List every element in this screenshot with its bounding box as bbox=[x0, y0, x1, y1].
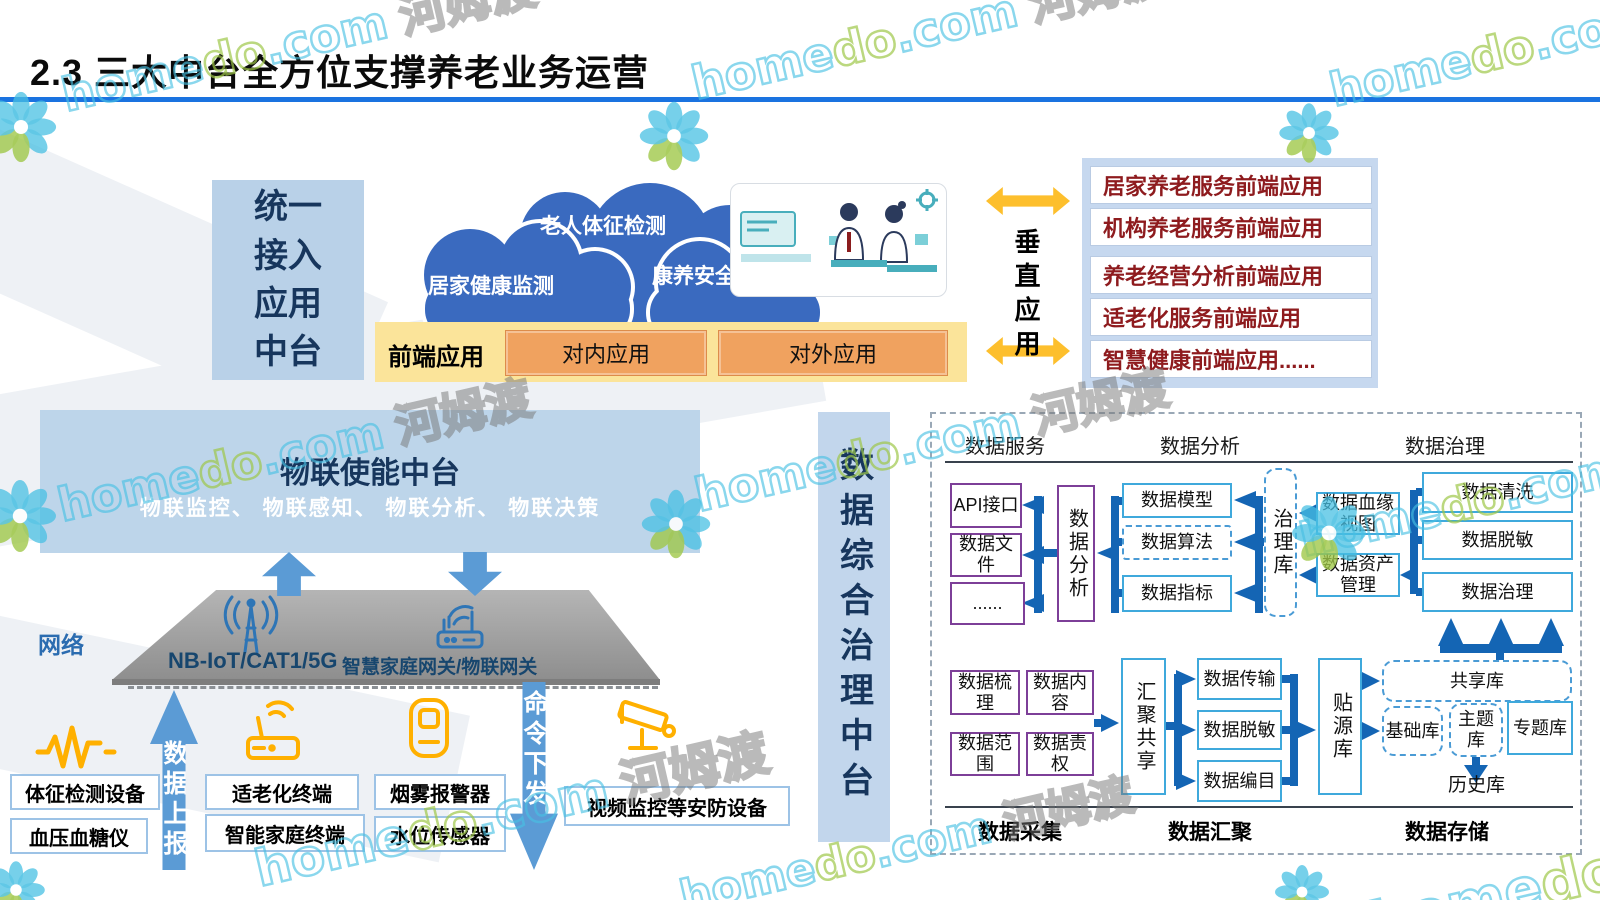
data-governance-platform-bar: 数据综合治理中台 bbox=[818, 412, 890, 842]
box-ellipsis: ...... bbox=[950, 582, 1025, 625]
cloud-label-vital-detection: 老人体征检测 bbox=[540, 210, 666, 240]
box-data-model: 数据模型 bbox=[1122, 483, 1232, 518]
cloud-label-home-health: 居家健康监测 bbox=[428, 270, 554, 300]
box-share-library: 共享库 bbox=[1382, 660, 1572, 702]
device-label-elder-terminal: 适老化终端 bbox=[205, 774, 359, 810]
command-download-label: 命令下发 bbox=[516, 690, 552, 810]
internal-app-box: 对内应用 bbox=[505, 330, 707, 376]
box-data-cleaning: 数据清洗 bbox=[1422, 472, 1573, 513]
slide-title: 2.3 三大中台全方位支撑养老业务运营 bbox=[30, 44, 649, 96]
section-header-data-governance: 数据治理 bbox=[1405, 430, 1485, 459]
box-data-content: 数据内容 bbox=[1026, 670, 1094, 715]
double-headed-arrow bbox=[986, 187, 1070, 215]
box-data-duty: 数据责权 bbox=[1026, 732, 1094, 776]
vertical-app-item: 机构养老服务前端应用 bbox=[1090, 208, 1372, 246]
homedo-flower-icon bbox=[636, 98, 712, 174]
slide-canvas: 2.3 三大中台全方位支撑养老业务运营 统一 接入 应用 中台 老人体征检测 居… bbox=[0, 0, 1600, 900]
radio-tech-label: NB-IoT/CAT1/5G bbox=[168, 648, 337, 674]
vertical-apps-label: 垂直应用 bbox=[1008, 228, 1045, 364]
cctv-camera-icon bbox=[612, 698, 688, 760]
device-label-video: 视频监控等安防设备 bbox=[564, 786, 790, 826]
box-data-file: 数据文件 bbox=[950, 533, 1022, 577]
down-arrow bbox=[448, 552, 502, 596]
box-data-combing: 数据梳理 bbox=[950, 670, 1020, 715]
vertical-app-item: 养老经营分析前端应用 bbox=[1090, 256, 1372, 294]
unified-access-platform-panel: 统一 接入 应用 中台 bbox=[212, 180, 364, 380]
box-base-library: 基础库 bbox=[1382, 706, 1443, 756]
device-label-vital: 体征检测设备 bbox=[10, 774, 160, 810]
vertical-app-item: 居家养老服务前端应用 bbox=[1090, 166, 1372, 204]
section-header-data-analysis: 数据分析 bbox=[1160, 430, 1240, 459]
device-label-smoke: 烟雾报警器 bbox=[374, 774, 506, 810]
device-label-home-terminal: 智能家庭终端 bbox=[205, 814, 365, 852]
dashed-separator bbox=[128, 686, 658, 689]
device-label-water: 水位传感器 bbox=[374, 816, 506, 852]
vertical-app-item: 智慧健康前端应用...... bbox=[1090, 340, 1372, 378]
unified-access-platform-label: 统一 接入 应用 中台 bbox=[254, 183, 322, 376]
device-label-bp: 血压血糖仪 bbox=[10, 818, 148, 854]
section-footer-data-collect: 数据采集 bbox=[978, 816, 1062, 846]
box-data-index: 数据指标 bbox=[1122, 575, 1232, 612]
title-divider bbox=[0, 97, 1600, 102]
office-illustration bbox=[730, 183, 947, 297]
gateway-router-icon bbox=[430, 596, 490, 654]
smoke-alarm-icon bbox=[400, 696, 458, 762]
network-layer-edge bbox=[112, 679, 660, 685]
history-library-label: 历史库 bbox=[1448, 770, 1505, 797]
smart-gateway-icon bbox=[240, 698, 306, 766]
box-theme-library: 主题库 bbox=[1449, 703, 1503, 757]
data-governance-platform-label: 数据综合治理中台 bbox=[830, 447, 879, 807]
box-data-governance: 数据治理 bbox=[1422, 572, 1573, 612]
box-special-library: 专题库 bbox=[1507, 701, 1573, 755]
gateway-label: 智慧家庭网关/物联网关 bbox=[342, 652, 537, 679]
box-data-masking: 数据脱敏 bbox=[1422, 520, 1573, 560]
homedo-flower-icon bbox=[1276, 100, 1342, 166]
box-source-library: 贴源库 bbox=[1318, 658, 1362, 795]
vital-pulse-icon bbox=[34, 722, 118, 780]
homedo-flower-icon bbox=[0, 858, 48, 900]
box-data-asset-mgmt: 数据资产管理 bbox=[1316, 553, 1400, 597]
vertical-app-item: 适老化服务前端应用 bbox=[1090, 298, 1372, 336]
section-header-data-service: 数据服务 bbox=[965, 430, 1045, 459]
box-data-analysis: 数据分析 bbox=[1057, 485, 1095, 622]
box-source-library-label: 贴源库 bbox=[1329, 692, 1352, 761]
frontend-app-label: 前端应用 bbox=[388, 337, 484, 372]
section-footer-data-aggregate: 数据汇聚 bbox=[1168, 816, 1252, 846]
box-data-masking-2: 数据脱敏 bbox=[1197, 710, 1282, 750]
watermark: homedo.com河姆渡 bbox=[1323, 0, 1600, 120]
box-data-scope: 数据范围 bbox=[950, 732, 1020, 776]
box-data-transfer: 数据传输 bbox=[1197, 658, 1282, 700]
command-download-arrow: 命令下发 bbox=[510, 682, 558, 870]
iot-platform-subtitle: 物联监控、 物联感知、 物联分析、 物联决策 bbox=[40, 492, 700, 522]
homedo-flower-icon bbox=[1272, 862, 1332, 900]
box-api-interface: API接口 bbox=[950, 483, 1022, 528]
section-footer-data-storage: 数据存储 bbox=[1405, 816, 1489, 846]
box-governance-library: 治理库 bbox=[1264, 468, 1297, 617]
box-governance-library-label: 治理库 bbox=[1269, 508, 1292, 577]
network-label: 网络 bbox=[38, 626, 84, 660]
iot-platform-title: 物联使能中台 bbox=[40, 448, 700, 492]
box-data-lineage: 数据血缘视图 bbox=[1316, 492, 1400, 535]
box-aggregation-sharing: 汇聚共享 bbox=[1121, 658, 1166, 795]
external-app-box: 对外应用 bbox=[718, 330, 948, 376]
box-data-catalog: 数据编目 bbox=[1197, 760, 1282, 802]
box-data-analysis-label: 数据分析 bbox=[1065, 508, 1088, 600]
box-aggregation-sharing-label: 汇聚共享 bbox=[1132, 681, 1155, 773]
box-data-algorithm: 数据算法 bbox=[1122, 525, 1232, 560]
